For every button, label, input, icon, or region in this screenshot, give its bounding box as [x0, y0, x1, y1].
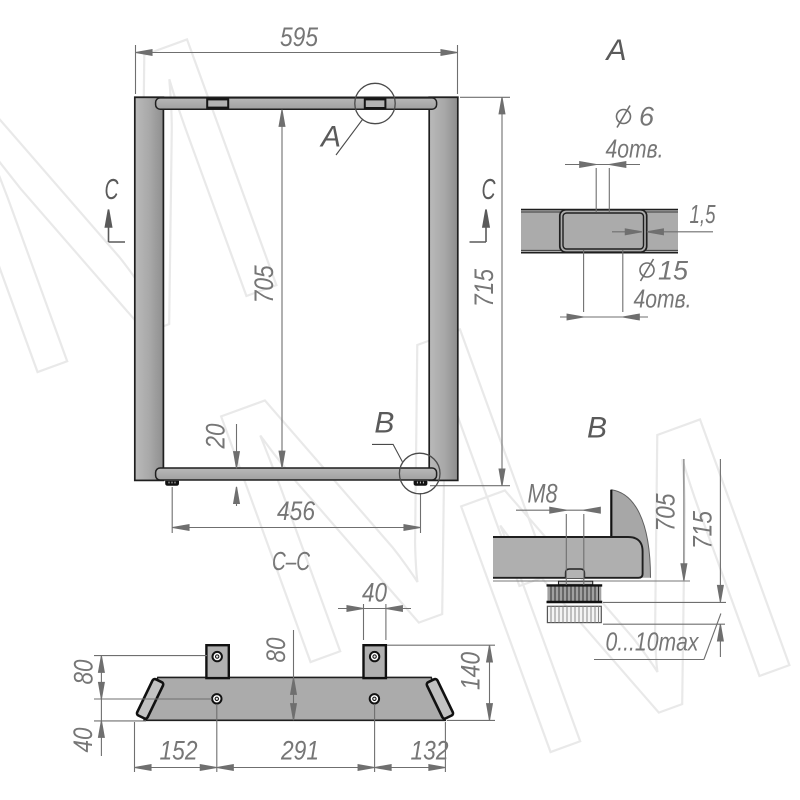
- svg-text:A: A: [604, 34, 626, 67]
- svg-text:4отв.: 4отв.: [606, 134, 664, 164]
- svg-text:140: 140: [456, 652, 486, 690]
- svg-text:C: C: [105, 174, 120, 206]
- svg-text:20: 20: [201, 424, 231, 450]
- svg-text:0...10max: 0...10max: [606, 627, 700, 657]
- svg-text:80: 80: [69, 660, 99, 685]
- svg-text:705: 705: [249, 264, 279, 303]
- svg-text:4отв.: 4отв.: [634, 284, 692, 314]
- svg-text:1,5: 1,5: [690, 199, 716, 229]
- svg-text:291: 291: [280, 736, 319, 766]
- svg-text:715: 715: [688, 510, 718, 549]
- svg-text:15: 15: [658, 256, 689, 286]
- svg-text:705: 705: [651, 493, 681, 532]
- svg-text:6: 6: [639, 102, 655, 132]
- svg-text:C–C: C–C: [272, 546, 310, 576]
- svg-text:M8: M8: [528, 479, 558, 509]
- svg-text:132: 132: [411, 736, 449, 766]
- svg-text:715: 715: [469, 268, 499, 307]
- svg-text:40: 40: [362, 578, 387, 608]
- svg-text:456: 456: [277, 496, 316, 526]
- svg-text:B: B: [374, 407, 394, 440]
- svg-text:B: B: [587, 412, 607, 445]
- svg-text:A: A: [319, 121, 341, 154]
- svg-text:C: C: [482, 174, 497, 206]
- svg-text:80: 80: [261, 638, 291, 663]
- svg-text:152: 152: [160, 736, 198, 766]
- svg-text:595: 595: [280, 22, 319, 52]
- svg-text:40: 40: [68, 728, 98, 753]
